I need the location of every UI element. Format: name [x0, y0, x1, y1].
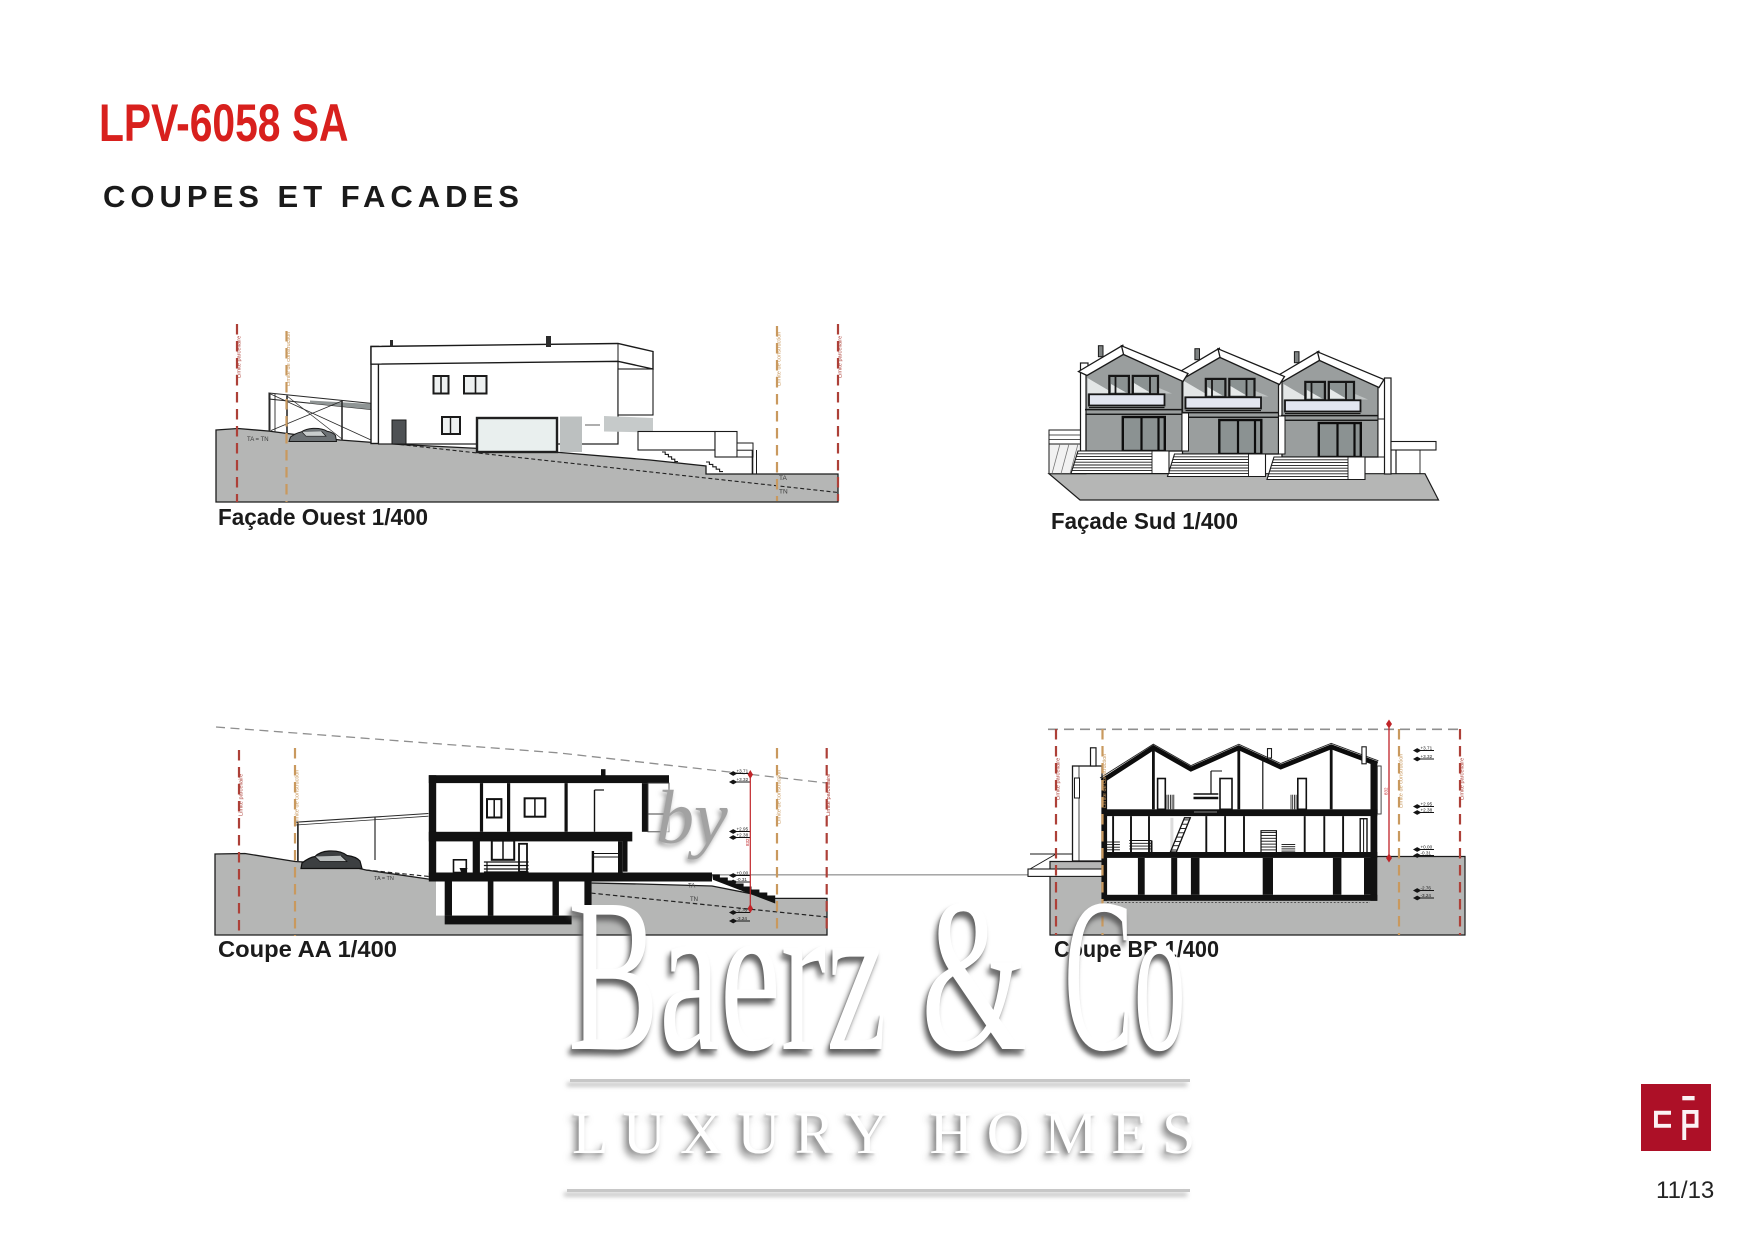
svg-text:TA = TN: TA = TN — [374, 876, 394, 882]
svg-text:Limite de construction: Limite de construction — [295, 770, 301, 824]
svg-text:Limite de construction: Limite de construction — [777, 332, 783, 386]
svg-text:TN: TN — [779, 489, 788, 496]
svg-text:TA = TN: TA = TN — [247, 437, 269, 443]
svg-text:Limite parcellaire: Limite parcellaire — [826, 774, 832, 816]
svg-text:+2.95: +2.95 — [737, 826, 749, 831]
svg-text:Limite parcellaire: Limite parcellaire — [237, 336, 243, 378]
svg-text:+3.32: +3.32 — [1421, 754, 1433, 759]
svg-text:Limite de construction: Limite de construction — [286, 332, 292, 386]
svg-text:Limite parcellaire: Limite parcellaire — [838, 336, 844, 378]
svg-text:Limite parcellaire: Limite parcellaire — [1460, 758, 1466, 800]
svg-text:Limite parcellaire: Limite parcellaire — [1056, 758, 1062, 800]
svg-text:Façade Ouest 1/400: Façade Ouest 1/400 — [218, 504, 428, 530]
svg-text:832: 832 — [1384, 787, 1389, 795]
svg-text:Coupe AA 1/400: Coupe AA 1/400 — [218, 936, 397, 962]
svg-text:+2.38: +2.38 — [1421, 807, 1433, 812]
svg-text:+3.71: +3.71 — [1421, 745, 1433, 750]
svg-text:Façade Sud 1/400: Façade Sud 1/400 — [1051, 508, 1238, 534]
svg-text:-2.76: -2.76 — [1421, 885, 1432, 890]
svg-text:TA: TA — [779, 475, 787, 482]
svg-text:+0.00: +0.00 — [1421, 844, 1433, 849]
svg-text:+3.71: +3.71 — [737, 768, 749, 773]
svg-text:+3.32: +3.32 — [737, 777, 749, 782]
svg-text:+2.38: +2.38 — [737, 832, 749, 837]
svg-text:-0.31: -0.31 — [1421, 850, 1432, 855]
svg-text:-3.24: -3.24 — [1421, 893, 1432, 898]
svg-text:Limite de construction: Limite de construction — [1399, 754, 1405, 808]
svg-text:+2.95: +2.95 — [1421, 801, 1433, 806]
svg-text:Limite parcellaire: Limite parcellaire — [239, 774, 245, 816]
svg-text:Limite de construction: Limite de construction — [1102, 754, 1108, 808]
svg-text:832: 832 — [745, 838, 750, 846]
svg-text:Limite de construction: Limite de construction — [777, 770, 783, 824]
